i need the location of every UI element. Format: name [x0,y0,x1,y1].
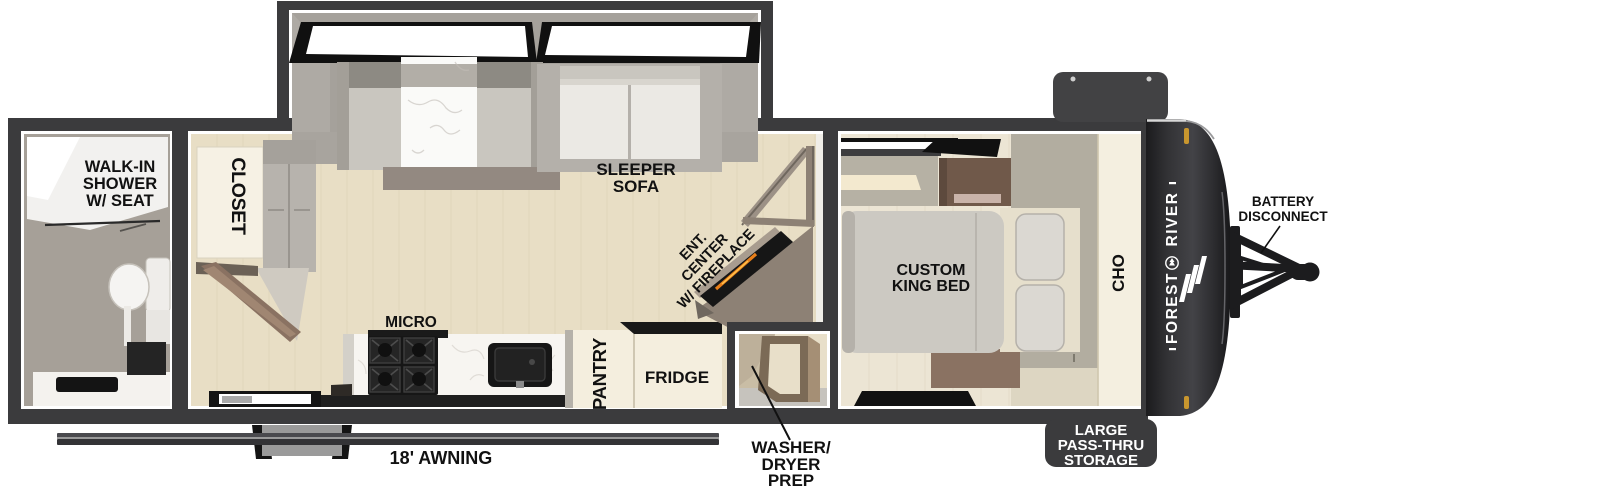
svg-text:KING BED: KING BED [892,278,970,295]
svg-text:MICRO: MICRO [385,314,437,331]
svg-text:PANTRY: PANTRY [589,337,610,410]
svg-text:SHOWER: SHOWER [83,175,157,193]
svg-text:WALK-IN: WALK-IN [85,158,156,176]
svg-text:CLOSET: CLOSET [227,157,249,235]
svg-text:BATTERY: BATTERY [1252,194,1314,209]
svg-text:W/ SEAT: W/ SEAT [86,192,154,210]
svg-text:18' AWNING: 18' AWNING [390,448,493,468]
svg-text:SOFA: SOFA [613,177,659,196]
svg-text:STORAGE: STORAGE [1064,452,1138,469]
svg-text:CUSTOM: CUSTOM [896,262,965,279]
svg-text:DISCONNECT: DISCONNECT [1238,209,1328,224]
svg-text:PREP: PREP [768,471,814,488]
svg-text:RIVER: RIVER [1164,192,1181,247]
svg-text:CHO: CHO [1109,254,1128,292]
svg-text:FRIDGE: FRIDGE [645,368,709,387]
svg-text:FOREST: FOREST [1164,272,1181,344]
